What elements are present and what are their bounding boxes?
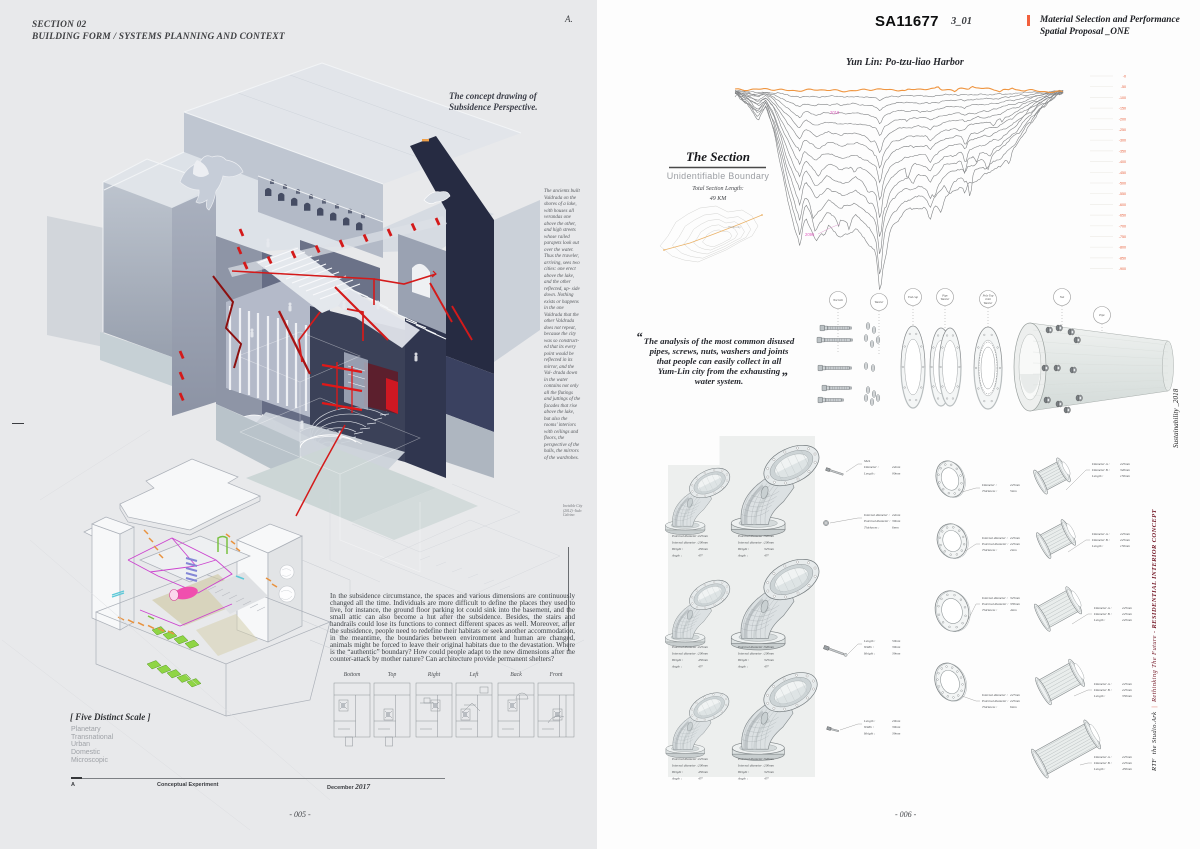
svg-text:External diameter :: External diameter : [671,645,699,649]
svg-text:Height :: Height : [737,658,749,662]
svg-text:-300: -300 [1119,139,1126,143]
svg-text:Thickness :: Thickness : [982,705,997,709]
svg-text:Height :: Height : [671,658,683,662]
svg-text:2016: 2016 [830,110,840,115]
svg-text:200mm: 200mm [764,541,775,545]
svg-text:225mm: 225mm [1010,536,1021,540]
svg-text:-750: -750 [1119,235,1126,239]
svg-text:Width :: Width : [864,725,874,729]
svg-text:External diameter :: External diameter : [981,542,1009,546]
svg-text:225mm: 225mm [1122,761,1133,765]
svg-text:Diameter B :: Diameter B : [1093,761,1112,765]
svg-text:45°: 45° [764,777,769,781]
svg-text:450mm: 450mm [698,658,709,662]
svg-text:450mm: 450mm [698,770,709,774]
svg-text:45°: 45° [764,554,769,558]
svg-text:Thickness :: Thickness : [864,525,879,529]
svg-text:Diameter A :: Diameter A : [1091,462,1110,466]
svg-text:Angle :: Angle : [737,554,748,558]
svg-text:-150: -150 [1119,107,1126,111]
svg-text:Nut: Nut [1059,295,1065,299]
svg-text:45°: 45° [698,665,703,669]
svg-text:39mm: 39mm [892,519,901,523]
svg-text:Angle :: Angle : [671,554,682,558]
svg-text:Length :: Length : [1091,544,1103,548]
svg-text:2mm: 2mm [1010,548,1017,552]
svg-text:Internal diameter :: Internal diameter : [737,764,764,768]
svg-text:50mm: 50mm [892,639,901,643]
svg-text:-200: -200 [1119,117,1126,121]
svg-text:325mm: 325mm [764,770,775,774]
svg-text:Angle :: Angle : [737,665,748,669]
svg-text:340mm: 340mm [1120,468,1131,472]
svg-text:225mm: 225mm [1122,612,1133,616]
svg-text:Length :: Length : [1093,767,1105,771]
svg-text:45°: 45° [698,777,703,781]
svg-text:225mm: 225mm [698,645,709,649]
svg-text:Internal diameter :: Internal diameter : [981,693,1008,697]
svg-text:-700: -700 [1119,224,1126,228]
svg-text:-400: -400 [1119,160,1126,164]
svg-text:4mm: 4mm [1010,608,1017,612]
svg-text:225mm: 225mm [1122,606,1133,610]
svg-text:-850: -850 [1119,256,1126,260]
svg-text:-600: -600 [1119,203,1126,207]
svg-text:Height :: Height : [671,770,683,774]
svg-text:90mm: 90mm [892,471,901,475]
svg-text:-800: -800 [1119,246,1126,250]
svg-text:Length :: Length : [863,471,875,475]
svg-text:Diameter A :: Diameter A : [1093,606,1112,610]
svg-text:Angle :: Angle : [737,777,748,781]
svg-text:-0: -0 [1123,75,1126,79]
svg-text:225mm: 225mm [1010,542,1021,546]
svg-text:Height :: Height : [737,547,749,551]
svg-text:150mm: 150mm [1120,474,1131,478]
svg-text:Washer: Washer [941,297,951,301]
svg-text:Angle :: Angle : [671,665,682,669]
svg-text:Internal diameter :: Internal diameter : [863,513,890,517]
svg-text:325mm: 325mm [1010,596,1021,600]
svg-text:225mm: 225mm [1010,699,1021,703]
svg-text:Washer: Washer [984,301,994,305]
svg-text:Internal diameter :: Internal diameter : [737,541,764,545]
svg-text:6mm: 6mm [1010,705,1017,709]
svg-text:External diameter :: External diameter : [981,699,1009,703]
svg-text:200mm: 200mm [698,541,709,545]
svg-text:Diameter :: Diameter : [981,483,997,487]
svg-text:5mm: 5mm [1010,489,1017,493]
svg-text:39mm: 39mm [892,651,901,655]
svg-text:-350: -350 [1119,149,1126,153]
svg-text:Diameter B :: Diameter B : [1093,688,1112,692]
svg-text:External diameter :: External diameter : [671,534,699,538]
svg-text:Internal diameter :: Internal diameter : [671,541,698,545]
svg-text:Thickness :: Thickness : [982,608,997,612]
svg-text:Height :: Height : [737,770,749,774]
svg-text:225mm: 225mm [1122,755,1133,759]
svg-text:39mm: 39mm [892,645,901,649]
svg-text:225mm: 225mm [1120,462,1131,466]
svg-text:45°: 45° [764,665,769,669]
svg-text:Internal diameter :: Internal diameter : [671,764,698,768]
svg-text:225mm: 225mm [1120,532,1131,536]
svg-text:450mm: 450mm [698,547,709,551]
svg-text:Pipe: Pipe [1098,313,1105,317]
svg-text:225mm: 225mm [1122,682,1133,686]
svg-text:24mm: 24mm [892,513,901,517]
svg-text:Thickness :: Thickness : [982,489,997,493]
svg-text:External diameter :: External diameter : [671,757,699,761]
svg-text:Length :: Length : [1093,694,1105,698]
svg-text:-100: -100 [1119,96,1126,100]
svg-text:340mm: 340mm [764,757,775,761]
svg-text:39mm: 39mm [892,725,901,729]
svg-text:340mm: 340mm [764,645,775,649]
svg-text:Width :: Width : [864,645,874,649]
svg-text:End cap: End cap [907,295,918,299]
svg-text:-450: -450 [1119,171,1126,175]
svg-text:Height :: Height : [863,651,875,655]
svg-text:340mm: 340mm [764,534,775,538]
svg-text:External diameter :: External diameter : [981,602,1009,606]
svg-text:Length :: Length : [1091,474,1103,478]
svg-text:Nut bolt: Nut bolt [832,298,843,302]
svg-text:Angle :: Angle : [671,777,682,781]
svg-text:29mm: 29mm [892,719,901,723]
svg-text:Internal diameter :: Internal diameter : [671,652,698,656]
svg-text:Diameter B :: Diameter B : [1093,612,1112,616]
svg-text:-500: -500 [1119,182,1126,186]
svg-text:225mm: 225mm [698,757,709,761]
svg-text:225mm: 225mm [1010,483,1021,487]
svg-text:245mm: 245mm [1122,618,1133,622]
svg-text:Yunlin city: Yunlin city [728,225,741,229]
svg-text:325mm: 325mm [764,547,775,551]
svg-text:-650: -650 [1119,214,1126,218]
svg-text:M24: M24 [863,459,871,463]
svg-text:Washer: Washer [875,300,885,304]
svg-text:External diameter :: External diameter : [737,757,765,761]
svg-text:Height :: Height : [863,731,875,735]
svg-text:330mm: 330mm [1010,602,1021,606]
svg-text:150mm: 150mm [1120,544,1131,548]
svg-text:350mm: 350mm [1122,694,1133,698]
svg-text:225mm: 225mm [1120,538,1131,542]
svg-text:225mm: 225mm [1122,688,1133,692]
svg-text:Diameter A :: Diameter A : [1093,682,1112,686]
svg-text:Length :: Length : [863,719,875,723]
svg-text:Diameter :: Diameter : [863,465,879,469]
svg-text:24mm: 24mm [892,465,901,469]
svg-text:Diameter B :: Diameter B : [1091,468,1110,472]
svg-text:200mm: 200mm [698,764,709,768]
svg-text:6mm: 6mm [892,525,899,529]
svg-text:External diameter :: External diameter : [863,519,891,523]
svg-text:2096: 2096 [805,232,815,237]
svg-text:200mm: 200mm [764,764,775,768]
svg-text:39mm: 39mm [892,731,901,735]
svg-text:-550: -550 [1119,192,1126,196]
svg-text:Diameter B :: Diameter B : [1091,538,1110,542]
svg-text:227mm: 227mm [1010,693,1021,697]
svg-text:325mm: 325mm [764,658,775,662]
svg-text:External diameter :: External diameter : [737,534,765,538]
svg-text:Height :: Height : [671,547,683,551]
svg-text:-50: -50 [1121,85,1126,89]
svg-text:Thickness :: Thickness : [982,548,997,552]
svg-text:Internal diameter :: Internal diameter : [981,536,1008,540]
svg-text:Internal diameter :: Internal diameter : [737,652,764,656]
svg-text:-900: -900 [1119,267,1126,271]
svg-text:450mm: 450mm [1122,767,1133,771]
svg-text:200mm: 200mm [698,652,709,656]
svg-text:-250: -250 [1119,128,1126,132]
svg-text:Length :: Length : [863,639,875,643]
svg-text:Length :: Length : [1093,618,1105,622]
svg-text:Diameter A :: Diameter A : [1091,532,1110,536]
svg-text:45°: 45° [698,554,703,558]
svg-text:225mm: 225mm [698,534,709,538]
svg-text:200mm: 200mm [764,652,775,656]
svg-text:Internal diameter :: Internal diameter : [981,596,1008,600]
svg-text:External diameter :: External diameter : [737,645,765,649]
svg-text:Diameter A :: Diameter A : [1093,755,1112,759]
